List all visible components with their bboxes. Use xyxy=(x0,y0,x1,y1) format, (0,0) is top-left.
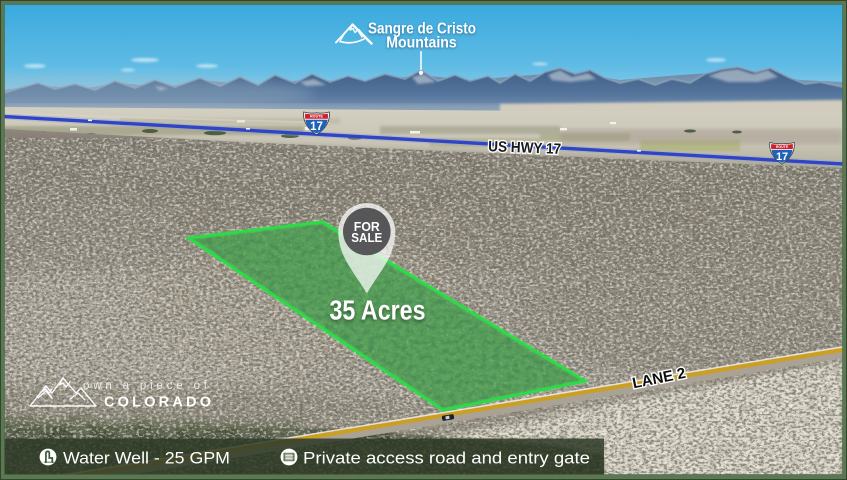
svg-text:ROUTE: ROUTE xyxy=(310,115,324,119)
svg-text:SALE: SALE xyxy=(351,231,382,245)
svg-text:Water Well - 25 GPM: Water Well - 25 GPM xyxy=(63,449,230,468)
svg-text:35 Acres: 35 Acres xyxy=(330,295,426,326)
svg-text:Private access road and entry: Private access road and entry gate xyxy=(303,449,590,468)
svg-text:ROUTE: ROUTE xyxy=(776,145,789,149)
svg-text:17: 17 xyxy=(310,121,323,133)
svg-text:Mountains: Mountains xyxy=(386,35,457,52)
svg-text:US HWY 17: US HWY 17 xyxy=(488,138,562,158)
svg-text:17: 17 xyxy=(776,151,788,163)
